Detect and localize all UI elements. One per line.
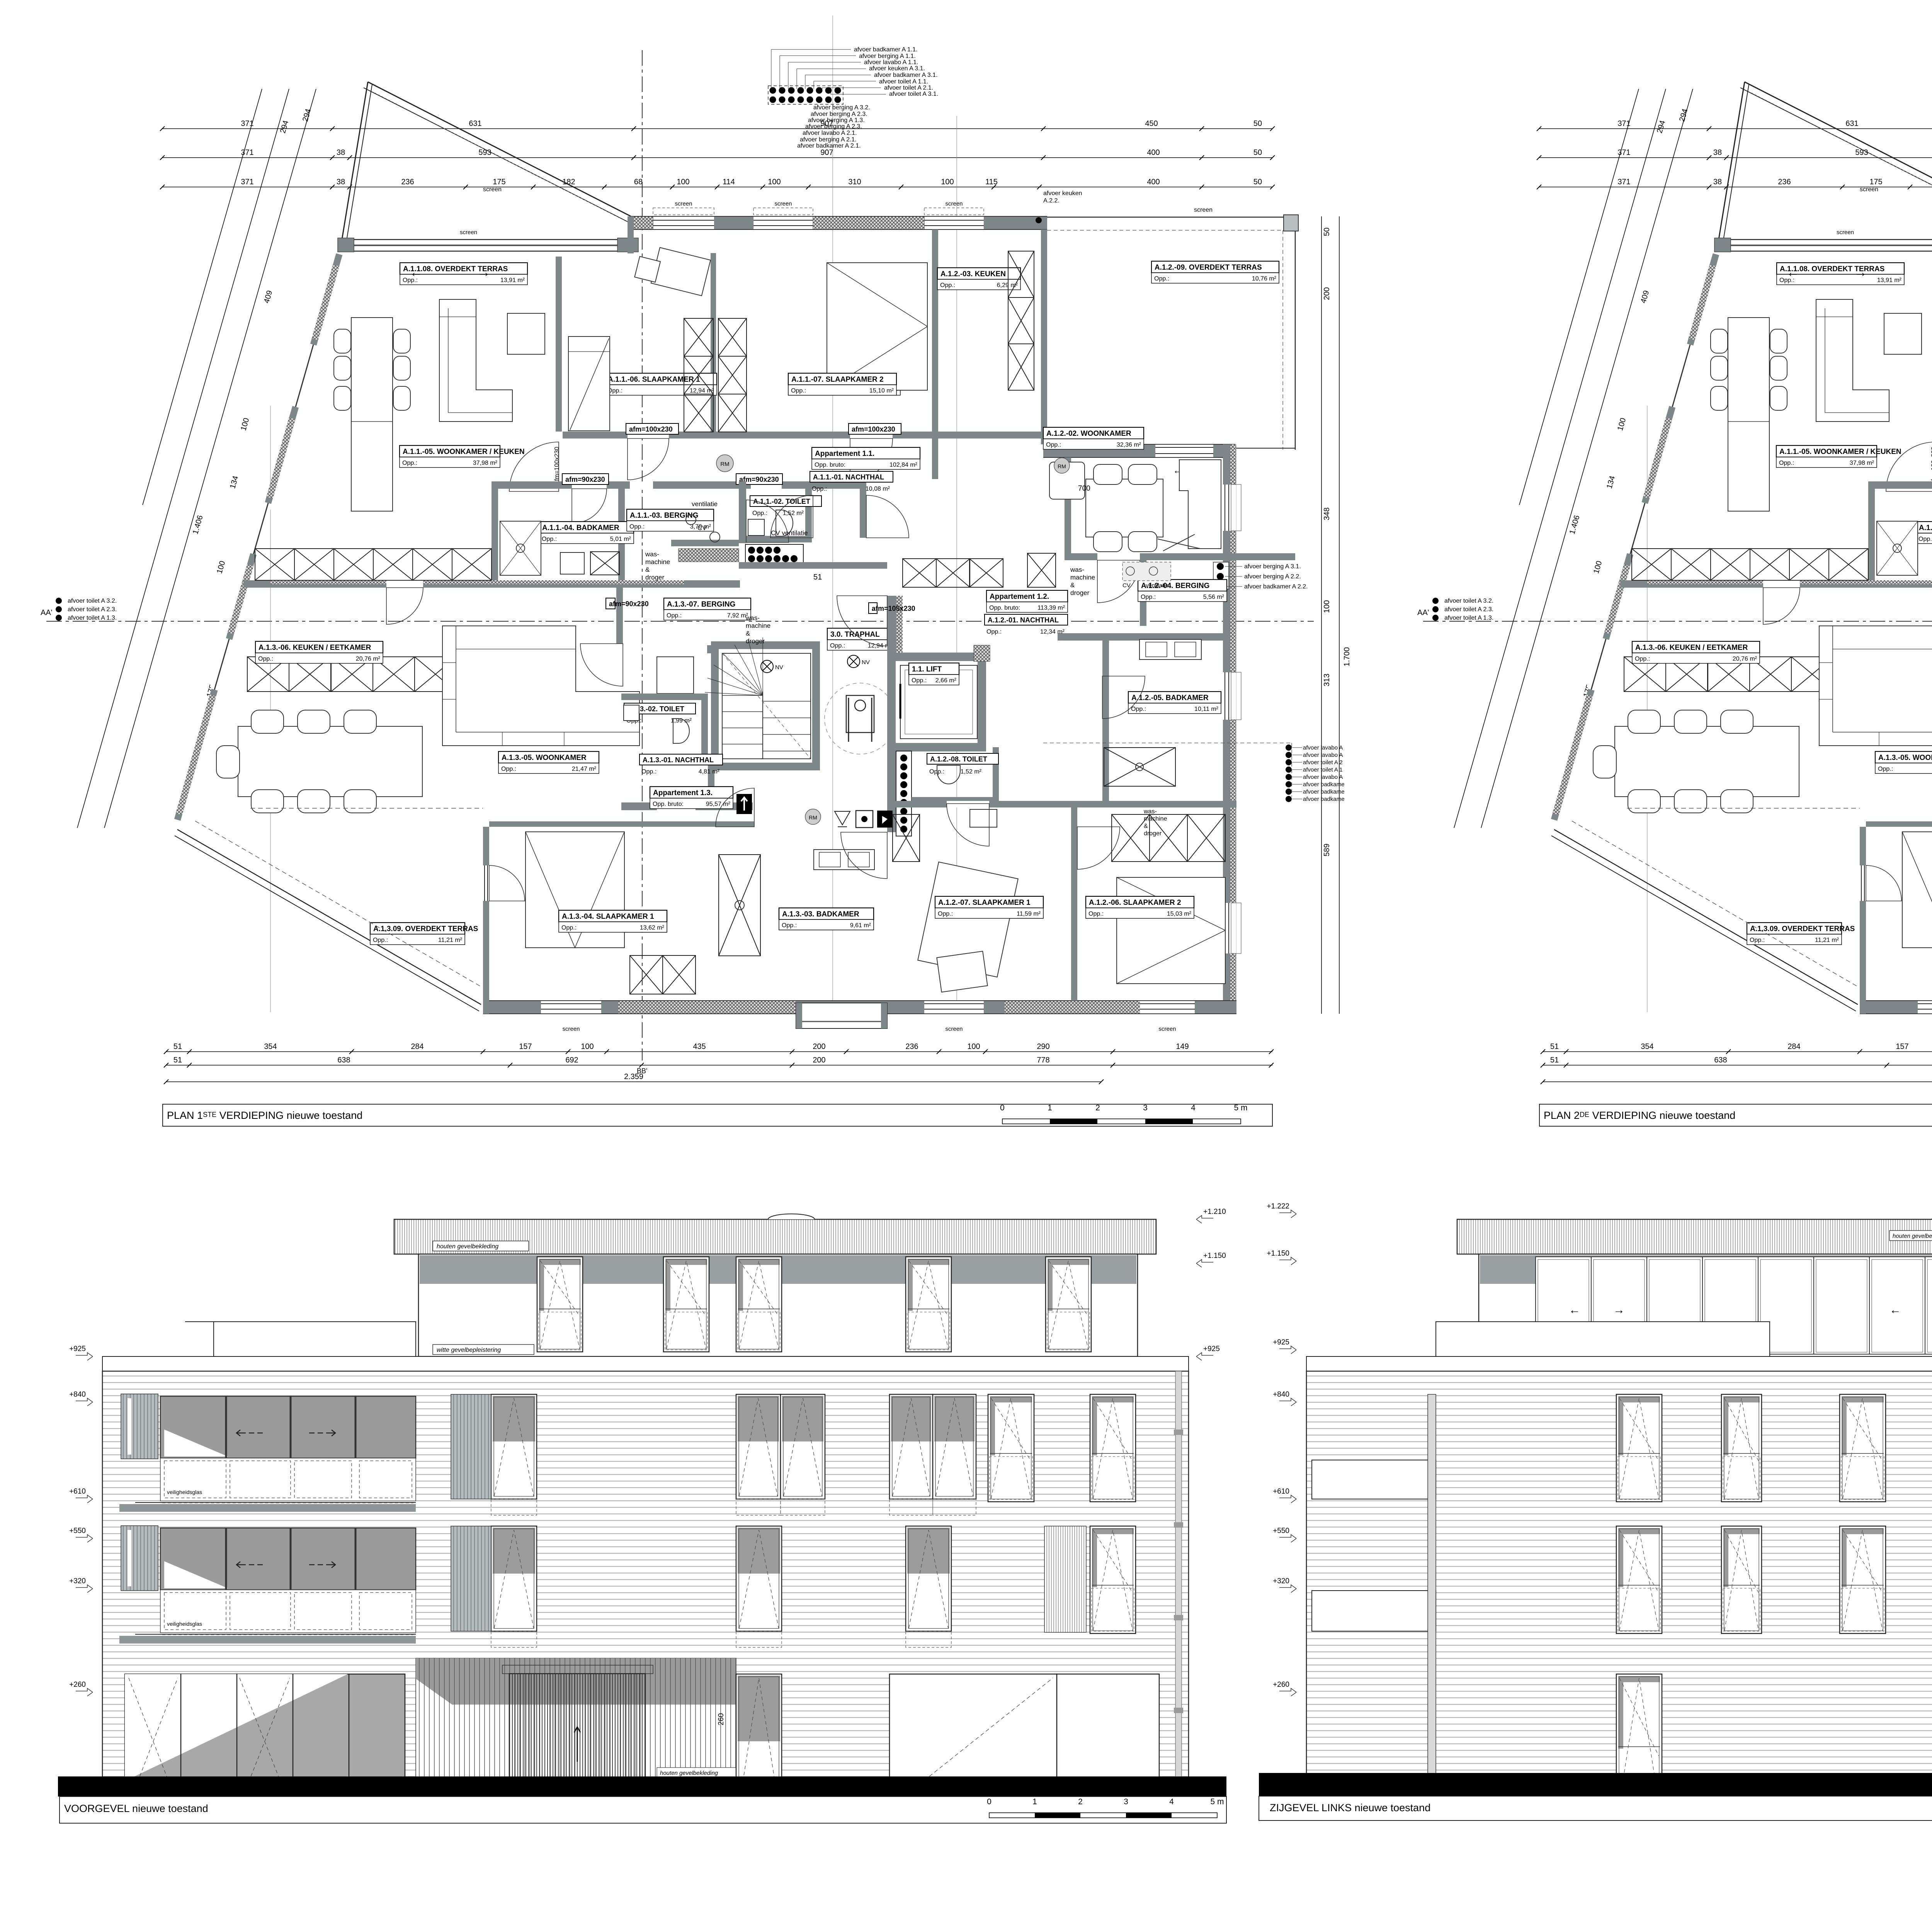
svg-text:100: 100	[1323, 600, 1331, 613]
svg-text:afvoer badkamer A 1.1.: afvoer badkamer A 1.1.	[854, 46, 918, 53]
svg-text:+925: +925	[69, 1345, 86, 1353]
svg-text:afvoer berging A 1.1.: afvoer berging A 1.1.	[859, 53, 916, 59]
svg-text:A.1.1.-01. NACHTHAL: A.1.1.-01. NACHTHAL	[813, 473, 884, 481]
svg-text:5 m: 5 m	[1210, 1797, 1224, 1806]
svg-text:A.2.2.: A.2.2.	[1043, 197, 1060, 204]
svg-text:Opp.:: Opp.:	[402, 460, 417, 466]
svg-text:354: 354	[264, 1042, 277, 1051]
svg-text:droger: droger	[645, 574, 664, 581]
svg-text:afvoer keuken: afvoer keuken	[1043, 190, 1082, 197]
svg-text:1,52 m²: 1,52 m²	[961, 768, 982, 775]
svg-text:afvoer badkame: afvoer badkame	[1303, 781, 1345, 788]
svg-text:afvoer badkame: afvoer badkame	[1303, 796, 1345, 802]
svg-text:RM: RM	[720, 461, 729, 467]
svg-text:afvoer lavabo A: afvoer lavabo A	[1303, 774, 1343, 780]
svg-text:screen: screen	[460, 229, 477, 236]
svg-text:100: 100	[581, 1042, 594, 1051]
svg-text:screen: screen	[675, 201, 692, 207]
svg-text:afm=100x230: afm=100x230	[629, 425, 673, 433]
svg-text:CV: CV	[1122, 582, 1131, 589]
svg-text:CV ventilatie: CV ventilatie	[771, 529, 808, 537]
svg-text:15,10 m²: 15,10 m²	[869, 388, 894, 394]
svg-text:A.1.3.-03. BADKAMER: A.1.3.-03. BADKAMER	[782, 910, 859, 918]
svg-text:4: 4	[1191, 1103, 1196, 1112]
svg-text:51: 51	[173, 1042, 182, 1051]
svg-text:afvoer badkamer A 3.1.: afvoer badkamer A 3.1.	[874, 72, 938, 78]
svg-text:RM: RM	[1058, 463, 1066, 469]
svg-text:Opp.:: Opp.:	[373, 937, 388, 943]
svg-text:+1.150: +1.150	[1203, 1252, 1226, 1260]
svg-text:NV: NV	[862, 659, 870, 666]
svg-text:PLAN 2DE VERDIEPING nieuwe toe: PLAN 2DE VERDIEPING nieuwe toestand	[1544, 1110, 1735, 1121]
svg-text:+260: +260	[1273, 1681, 1289, 1689]
svg-text:3: 3	[1124, 1797, 1128, 1806]
svg-text:200: 200	[813, 1042, 825, 1051]
svg-text:5,01 m²: 5,01 m²	[610, 536, 631, 542]
svg-text:Opp.:: Opp.:	[812, 486, 827, 492]
svg-text:A.1.1.-02. TOILET: A.1.1.-02. TOILET	[753, 498, 810, 505]
svg-text:+320: +320	[69, 1577, 86, 1585]
svg-text:Appartement 1.3.: Appartement 1.3.	[653, 789, 713, 797]
svg-text:afm=100x230: afm=100x230	[852, 425, 895, 433]
svg-text:638: 638	[337, 1056, 350, 1064]
svg-text:+925: +925	[1203, 1345, 1220, 1353]
svg-text:afvoer berging A 1.3.: afvoer berging A 1.3.	[808, 117, 865, 124]
svg-text:A.1.2.-01. NACHTHAL: A.1.2.-01. NACHTHAL	[988, 616, 1059, 624]
svg-text:371: 371	[241, 178, 253, 186]
svg-text:&: &	[1070, 581, 1075, 589]
svg-text:afvoer berging A 2.2.: afvoer berging A 2.2.	[1244, 573, 1301, 580]
svg-text:0: 0	[1000, 1103, 1005, 1112]
svg-text:236: 236	[401, 178, 414, 186]
svg-text:778: 778	[1037, 1056, 1049, 1064]
svg-text:175: 175	[493, 178, 505, 186]
svg-text:was-: was-	[745, 614, 760, 622]
svg-text:&: &	[645, 566, 650, 573]
svg-text:Opp.:: Opp.:	[940, 282, 955, 289]
svg-text:afvoer toilet A 1.3.: afvoer toilet A 1.3.	[68, 615, 117, 621]
svg-text:+1.150: +1.150	[1267, 1249, 1289, 1258]
svg-text:droger: droger	[1070, 589, 1089, 597]
svg-text:afm=100x230: afm=100x230	[554, 447, 560, 484]
svg-text:100: 100	[768, 178, 781, 186]
svg-text:afvoer badkame: afvoer badkame	[1303, 789, 1345, 795]
svg-text:A.1.1.-06. SLAAPKAMER 1: A.1.1.-06. SLAAPKAMER 1	[608, 376, 700, 384]
svg-text:A.1.1.-07. SLAAPKAMER 2: A.1.1.-07. SLAAPKAMER 2	[791, 376, 884, 384]
svg-text:631: 631	[469, 119, 481, 128]
svg-text:screen: screen	[483, 186, 502, 193]
svg-text:38: 38	[337, 148, 345, 157]
svg-text:afm=105x230: afm=105x230	[872, 605, 915, 612]
svg-text:ventilatie: ventilatie	[1146, 582, 1168, 589]
svg-text:Opp.:: Opp.:	[1141, 594, 1156, 600]
svg-text:afvoer berging A 2.3.: afvoer berging A 2.3.	[805, 123, 862, 130]
svg-text:1.1. LIFT: 1.1. LIFT	[912, 665, 942, 673]
svg-text:200: 200	[813, 1056, 825, 1064]
svg-text:+1.210: +1.210	[1203, 1208, 1226, 1216]
svg-text:witte gevelbepleistering: witte gevelbepleistering	[437, 1347, 501, 1353]
svg-text:Opp.:: Opp.:	[791, 388, 806, 394]
svg-text:AA': AA'	[41, 609, 53, 617]
svg-text:Appartement 1.1.: Appartement 1.1.	[815, 450, 874, 458]
svg-text:A.1.2.-09. OVERDEKT TERRAS: A.1.2.-09. OVERDEKT TERRAS	[1155, 263, 1262, 272]
svg-text:&: &	[746, 630, 750, 637]
svg-text:→: →	[477, 265, 490, 280]
svg-text:113,39 m²: 113,39 m²	[1037, 605, 1065, 611]
svg-text:310: 310	[848, 178, 861, 186]
svg-text:afvoer berging A 2.1.: afvoer berging A 2.1.	[800, 136, 857, 143]
svg-text:11,21 m²: 11,21 m²	[438, 937, 463, 943]
svg-text:afvoer berging A 3.1.: afvoer berging A 3.1.	[1244, 563, 1301, 570]
svg-text:Opp.:: Opp.:	[752, 510, 767, 517]
svg-text:screen: screen	[945, 1026, 963, 1032]
svg-text:Opp.:: Opp.:	[542, 536, 557, 542]
svg-text:afm=90x230: afm=90x230	[609, 600, 649, 608]
svg-text:afvoer keuken A 3.1.: afvoer keuken A 3.1.	[869, 65, 925, 72]
svg-text:houten gevelbekleding: houten gevelbekleding	[437, 1243, 498, 1250]
svg-text:screen: screen	[1158, 1026, 1176, 1032]
svg-text:A.1.2.-05. BADKAMER: A.1.2.-05. BADKAMER	[1131, 694, 1209, 702]
svg-text:screen: screen	[1194, 207, 1213, 213]
svg-text:+840: +840	[69, 1390, 86, 1399]
svg-text:afvoer toilet A 1.1.: afvoer toilet A 1.1.	[879, 78, 928, 85]
svg-text:5,56 m²: 5,56 m²	[1203, 594, 1225, 600]
svg-text:veiligheidsglas: veiligheidsglas	[167, 1621, 202, 1627]
svg-text:A.1.3.-06. KEUKEN / EETKAMER: A.1.3.-06. KEUKEN / EETKAMER	[259, 644, 371, 652]
svg-text:droger: droger	[746, 637, 765, 645]
svg-text:afvoer badkamer A 2.2.: afvoer badkamer A 2.2.	[1244, 583, 1308, 590]
svg-text:afvoer berging A 2.3.: afvoer berging A 2.3.	[811, 111, 867, 117]
svg-text:screen: screen	[774, 201, 792, 207]
svg-text:←: ←	[1889, 1304, 1901, 1316]
svg-text:afvoer toilet A 2.3.: afvoer toilet A 2.3.	[68, 606, 117, 613]
svg-text:9,61 m²: 9,61 m²	[850, 922, 871, 929]
svg-text:260: 260	[717, 1713, 725, 1725]
svg-text:Opp.:: Opp.:	[1046, 442, 1061, 448]
svg-text:←: ←	[1569, 1304, 1580, 1316]
svg-text:95,57 m²: 95,57 m²	[706, 801, 731, 807]
svg-text:screen: screen	[562, 1026, 580, 1032]
svg-text:50: 50	[1253, 119, 1262, 128]
svg-text:700: 700	[1078, 484, 1090, 493]
svg-text:afvoer lavabo A: afvoer lavabo A	[1303, 744, 1343, 751]
svg-text:3: 3	[1143, 1103, 1148, 1112]
svg-text:afvoer lavabo A 2.1.: afvoer lavabo A 2.1.	[803, 130, 857, 136]
svg-text:50: 50	[1323, 228, 1331, 236]
svg-text:afvoer badkamer A 2.1.: afvoer badkamer A 2.1.	[797, 143, 861, 149]
svg-text:BB': BB'	[637, 1067, 647, 1075]
svg-text:13,91 m²: 13,91 m²	[500, 277, 525, 284]
svg-text:Opp.:: Opp.:	[938, 911, 953, 917]
svg-text:149: 149	[1176, 1042, 1189, 1051]
svg-text:machine: machine	[1070, 574, 1095, 581]
svg-text:114: 114	[723, 178, 735, 186]
svg-text:houten gevelbekleding: houten gevelbekleding	[1893, 1233, 1932, 1239]
svg-text:afm=90x230: afm=90x230	[565, 476, 605, 483]
svg-text:+610: +610	[1273, 1487, 1289, 1496]
svg-text:+840: +840	[1273, 1390, 1289, 1399]
svg-text:+610: +610	[69, 1487, 86, 1496]
svg-text:A.1.2.-08. TOILET: A.1.2.-08. TOILET	[930, 755, 987, 763]
svg-text:VOORGEVEL nieuwe toestand: VOORGEVEL nieuwe toestand	[64, 1803, 208, 1814]
svg-text:Opp. bruto:: Opp. bruto:	[989, 605, 1020, 611]
svg-text:Opp.:: Opp.:	[667, 612, 682, 619]
svg-text:21,47 m²: 21,47 m²	[572, 766, 597, 772]
svg-text:A.1.3.-01. NACHTHAL: A.1.3.-01. NACHTHAL	[643, 756, 714, 764]
svg-text:68: 68	[634, 178, 643, 186]
svg-text:+925: +925	[1273, 1338, 1289, 1346]
svg-text:2: 2	[1078, 1797, 1083, 1806]
svg-text:1.700: 1.700	[1343, 647, 1351, 666]
svg-text:10,08 m²: 10,08 m²	[866, 486, 890, 492]
svg-text:10,76 m²: 10,76 m²	[1252, 275, 1277, 282]
svg-text:100: 100	[967, 1042, 980, 1051]
svg-text:A.1.2.-06. SLAAPKAMER 2: A.1.2.-06. SLAAPKAMER 2	[1089, 899, 1181, 907]
svg-text:589: 589	[1323, 843, 1331, 856]
svg-text:313: 313	[1323, 673, 1331, 686]
svg-text:284: 284	[411, 1042, 423, 1051]
svg-text:machine: machine	[1144, 816, 1167, 822]
svg-text:machine: machine	[645, 558, 670, 566]
svg-text:435: 435	[693, 1042, 706, 1051]
svg-text:CV: CV	[697, 524, 707, 532]
svg-text:machine: machine	[746, 622, 770, 629]
svg-text:Opp. bruto:: Opp. bruto:	[815, 462, 845, 468]
svg-text:was-: was-	[645, 551, 659, 558]
svg-text:5 m: 5 m	[1234, 1103, 1247, 1112]
svg-text:Opp.:: Opp.:	[501, 766, 516, 772]
svg-text:+320: +320	[1273, 1577, 1289, 1585]
svg-text:Opp.:: Opp.:	[1154, 275, 1169, 282]
svg-text:Opp.:: Opp.:	[912, 677, 927, 684]
svg-text:400: 400	[1147, 178, 1160, 186]
svg-text:ZIJGEVEL LINKS nieuwe toestand: ZIJGEVEL LINKS nieuwe toestand	[1270, 1802, 1430, 1814]
svg-text:2: 2	[1095, 1103, 1100, 1112]
svg-text:A.1.2.-07. SLAAPKAMER 1: A.1.2.-07. SLAAPKAMER 1	[938, 899, 1031, 907]
svg-text:290: 290	[1037, 1042, 1049, 1051]
svg-text:A.1.3.09. OVERDEKT TERRAS: A.1.3.09. OVERDEKT TERRAS	[373, 925, 478, 933]
svg-text:Opp. bruto:: Opp. bruto:	[653, 801, 684, 807]
svg-text:screen: screen	[945, 201, 963, 207]
svg-text:A.1.1.-04. BADKAMER: A.1.1.-04. BADKAMER	[542, 524, 619, 532]
svg-text:236: 236	[905, 1042, 918, 1051]
svg-text:+550: +550	[69, 1527, 86, 1535]
svg-text:A.1.3.-05. WOONKAMER: A.1.3.-05. WOONKAMER	[502, 754, 587, 762]
svg-text:Opp.:: Opp.:	[782, 922, 797, 929]
svg-text:A.1.2.-02. WOONKAMER: A.1.2.-02. WOONKAMER	[1046, 430, 1131, 438]
svg-text:Opp.:: Opp.:	[1131, 706, 1146, 712]
svg-text:A.1.3.-07. BERGING: A.1.3.-07. BERGING	[667, 600, 735, 609]
svg-text:38: 38	[337, 178, 345, 186]
svg-text:A.1.2.-03. KEUKEN: A.1.2.-03. KEUKEN	[940, 270, 1006, 278]
svg-text:907: 907	[820, 148, 833, 157]
svg-text:Opp.:: Opp.:	[641, 768, 656, 775]
svg-text:4: 4	[1169, 1797, 1174, 1806]
svg-text:NV: NV	[775, 664, 783, 671]
svg-text:Opp.:: Opp.:	[986, 629, 1002, 635]
svg-text:400: 400	[1147, 148, 1160, 157]
svg-text:Appartement 1.2.: Appartement 1.2.	[990, 593, 1049, 601]
svg-text:100: 100	[941, 178, 954, 186]
svg-text:+1.222: +1.222	[1267, 1202, 1289, 1210]
svg-text:was-: was-	[1143, 808, 1157, 815]
svg-text:→: →	[1613, 1304, 1625, 1316]
svg-text:←: ←	[410, 265, 423, 280]
svg-text:13,62 m²: 13,62 m²	[640, 925, 665, 931]
svg-text:102,84 m²: 102,84 m²	[889, 462, 918, 468]
svg-text:0: 0	[987, 1797, 992, 1806]
svg-text:10,11 m²: 10,11 m²	[1194, 706, 1219, 712]
svg-text:RM: RM	[809, 814, 817, 821]
svg-text:12,34 m²: 12,34 m²	[1040, 629, 1065, 635]
svg-text:51: 51	[813, 573, 822, 581]
svg-text:veiligheidsglas: veiligheidsglas	[167, 1489, 202, 1495]
svg-text:PLAN 1STE VERDIEPING nieuwe to: PLAN 1STE VERDIEPING nieuwe toestand	[167, 1110, 362, 1121]
svg-text:afvoer toilet A 2.1.: afvoer toilet A 2.1.	[884, 85, 933, 91]
svg-text:afvoer lavabo A 1.1.: afvoer lavabo A 1.1.	[864, 59, 918, 66]
svg-text:11,59 m²: 11,59 m²	[1017, 911, 1041, 917]
svg-text:afvoer toilet A 1: afvoer toilet A 1	[1303, 767, 1343, 773]
svg-text:A.1.1.-05. WOONKAMER / KEUKEN: A.1.1.-05. WOONKAMER / KEUKEN	[403, 448, 525, 456]
svg-text:droger: droger	[1144, 830, 1162, 837]
svg-text:51: 51	[173, 1056, 182, 1064]
svg-text:50: 50	[1253, 148, 1262, 157]
svg-text:houten gevelbekleding: houten gevelbekleding	[660, 1770, 718, 1776]
svg-text:348: 348	[1323, 507, 1331, 520]
svg-text:7,92 m²: 7,92 m²	[727, 612, 748, 619]
svg-text:+550: +550	[1273, 1527, 1289, 1535]
svg-text:A.1.3.-04. SLAAPKAMER 1: A.1.3.-04. SLAAPKAMER 1	[562, 913, 654, 921]
svg-text:4,81 m²: 4,81 m²	[699, 768, 720, 775]
svg-text:157: 157	[519, 1042, 532, 1051]
svg-text:+260: +260	[69, 1681, 86, 1689]
svg-text:afvoer toilet A 3.1.: afvoer toilet A 3.1.	[889, 91, 938, 97]
svg-text:1: 1	[1032, 1797, 1037, 1806]
svg-text:200: 200	[1323, 287, 1331, 300]
svg-text:Opp.:: Opp.:	[258, 656, 273, 662]
svg-text:1: 1	[1048, 1103, 1052, 1112]
svg-text:Opp.:: Opp.:	[629, 524, 645, 530]
svg-text:afvoer berging A 3.2.: afvoer berging A 3.2.	[813, 104, 870, 111]
svg-text:20,76 m²: 20,76 m²	[356, 656, 381, 662]
svg-text:afvoer lavabo A: afvoer lavabo A	[1303, 752, 1343, 758]
svg-text:32,36 m²: 32,36 m²	[1117, 442, 1141, 448]
svg-text:&: &	[1144, 823, 1148, 829]
svg-text:692: 692	[565, 1056, 578, 1064]
svg-text:afvoer toilet A 2: afvoer toilet A 2	[1303, 759, 1343, 766]
svg-text:Opp.:: Opp.:	[561, 925, 577, 931]
svg-text:ventilatie: ventilatie	[692, 500, 718, 508]
svg-text:Opp.:: Opp.:	[830, 642, 845, 649]
svg-text:37,98 m²: 37,98 m²	[473, 460, 498, 466]
svg-text:Opp.:: Opp.:	[1088, 911, 1104, 917]
svg-text:100: 100	[677, 178, 689, 186]
svg-text:2,66 m²: 2,66 m²	[935, 677, 957, 684]
svg-text:was-: was-	[1070, 566, 1084, 573]
svg-text:50: 50	[1253, 178, 1262, 186]
svg-text:450: 450	[1145, 119, 1158, 128]
svg-text:afvoer toilet A 3.2.: afvoer toilet A 3.2.	[68, 598, 117, 604]
svg-text:15,03 m²: 15,03 m²	[1167, 911, 1192, 917]
